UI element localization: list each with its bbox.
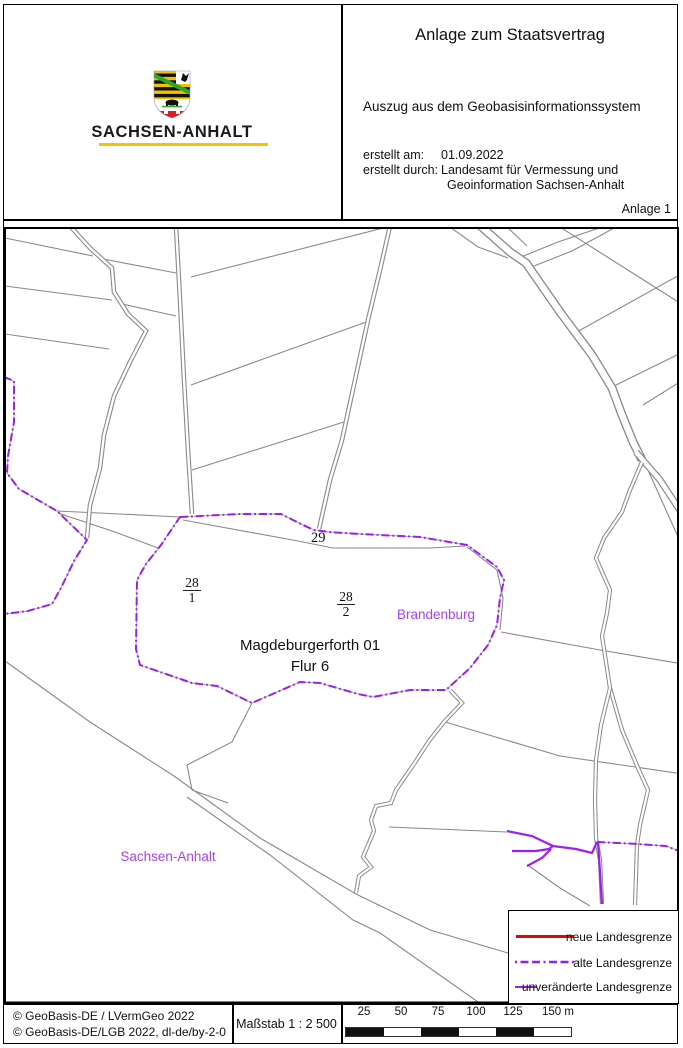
scalebar (345, 1027, 572, 1037)
scalebar-tick-125: 125 (493, 1006, 533, 1018)
parcel-28-2-denominator: 2 (331, 605, 361, 619)
scalebar-tick-100: 100 (456, 1006, 496, 1018)
legend-item-old-boundary: alte Landesgrenze (509, 955, 678, 971)
created-at-label: erstellt am: (363, 148, 424, 162)
scalebar-tick-25: 25 (344, 1006, 384, 1018)
annex-number: Anlage 1 (341, 202, 671, 216)
created-by-label: erstellt durch: (363, 163, 438, 177)
district-name-line2: Flur 6 (210, 658, 410, 675)
parcel-number-28-2: 28 2 (331, 590, 361, 619)
roads-and-streams (70, 227, 679, 905)
scalebar-segment (534, 1028, 572, 1036)
parcel-28-1-denominator: 1 (177, 591, 207, 605)
scalebar-tick-75: 75 (418, 1006, 458, 1018)
footer-divider-2 (341, 1003, 343, 1044)
logo-yellow-rule (99, 143, 268, 146)
document-subtitle: Auszug aus dem Geobasisinformationssyste… (363, 99, 641, 114)
parcel-number-29: 29 (311, 530, 326, 547)
scalebar-segment (496, 1028, 534, 1036)
created-at-value: 01.09.2022 (441, 148, 504, 162)
scalebar-segment (384, 1028, 422, 1036)
legend-item-unchanged-boundary: unveränderte Landesgrenze (509, 979, 678, 995)
scalebar-tick-150m: 150 m (534, 1006, 582, 1018)
copyright-line2: © GeoBasis-DE/LGB 2022, dl-de/by-2-0 (13, 1025, 226, 1039)
map-sheet: SACHSEN-ANHALT Anlage zum Staatsvertrag … (0, 0, 683, 1048)
state-label-sachsen-anhalt: Sachsen-Anhalt (106, 849, 230, 864)
document-title: Anlage zum Staatsvertrag (341, 26, 679, 45)
legend-item-new-boundary: neue Landesgrenze (509, 929, 678, 945)
scalebar-segment (421, 1028, 459, 1036)
scalebar-tick-50: 50 (381, 1006, 421, 1018)
copyright-line1: © GeoBasis-DE / LVermGeo 2022 (13, 1009, 194, 1023)
state-label-brandenburg: Brandenburg (384, 607, 488, 622)
scalebar-segment (346, 1028, 384, 1036)
sachsen-anhalt-coat-of-arms-icon (152, 70, 192, 120)
legend-label: neue Landesgrenze (566, 930, 672, 944)
parcel-number-28-1: 28 1 (177, 576, 207, 605)
unchanged-state-boundary (507, 831, 602, 904)
parcel-28-2-numerator: 28 (337, 590, 355, 605)
dashdot-purple-line-icon (514, 958, 580, 966)
parcel-28-1-numerator: 28 (183, 576, 201, 591)
logo-wordmark: SACHSEN-ANHALT (88, 123, 256, 142)
scale-ratio-label: Maßstab 1 : 2 500 (233, 1017, 340, 1031)
created-by-value-line1: Landesamt für Vermessung und (441, 163, 618, 177)
district-name-line1: Magdeburgerforth 01 (210, 637, 410, 654)
header-bottom-line (3, 219, 678, 221)
legend-box: neue Landesgrenze alte Landesgrenze unve… (508, 910, 679, 1004)
legend-label: alte Landesgrenze (573, 956, 672, 970)
legend-label: unveränderte Landesgrenze (522, 980, 672, 994)
scalebar-segment (459, 1028, 497, 1036)
created-by-value-line2: Geoinformation Sachsen-Anhalt (447, 178, 624, 192)
